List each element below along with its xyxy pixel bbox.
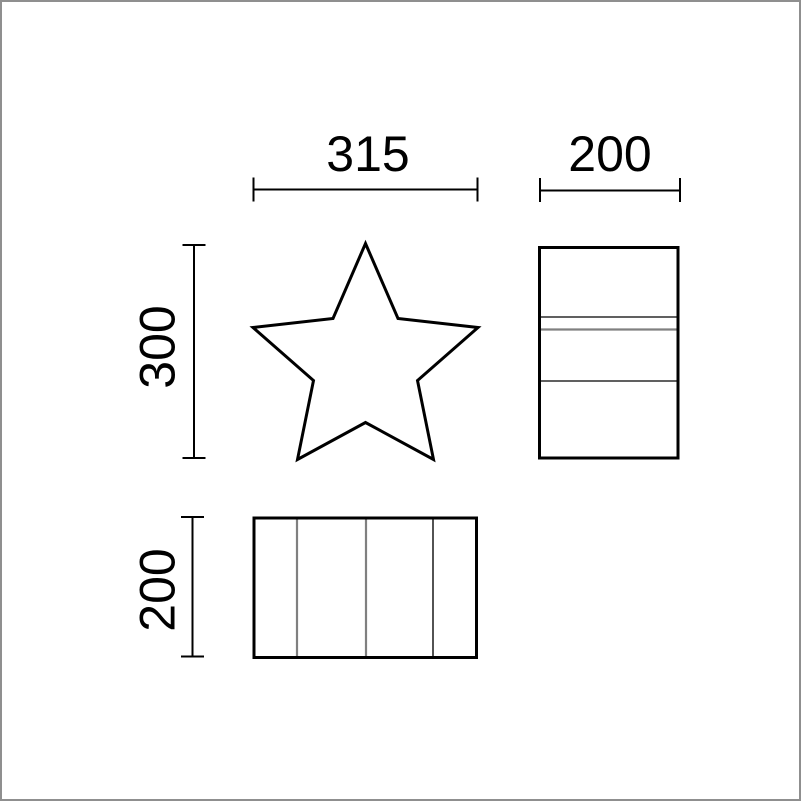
front-height-dimension-label: 300 <box>130 305 186 388</box>
drawing-page: 315 300 200 <box>0 0 801 801</box>
front-view: 315 300 <box>130 126 479 460</box>
side-view-outline <box>540 248 679 459</box>
front-width-dimension-label: 315 <box>326 126 409 182</box>
top-height-dimension-label: 200 <box>130 548 186 631</box>
top-height-dimension: 200 <box>130 517 205 657</box>
side-width-dimension: 200 <box>540 126 681 202</box>
star-front-outline <box>253 244 478 460</box>
side-view: 200 <box>540 126 681 458</box>
front-width-dimension: 315 <box>253 126 478 202</box>
orthographic-drawing: 315 300 200 <box>0 0 801 801</box>
side-width-dimension-label: 200 <box>568 126 651 182</box>
front-height-dimension: 300 <box>130 245 206 458</box>
top-view: 200 <box>130 517 477 658</box>
